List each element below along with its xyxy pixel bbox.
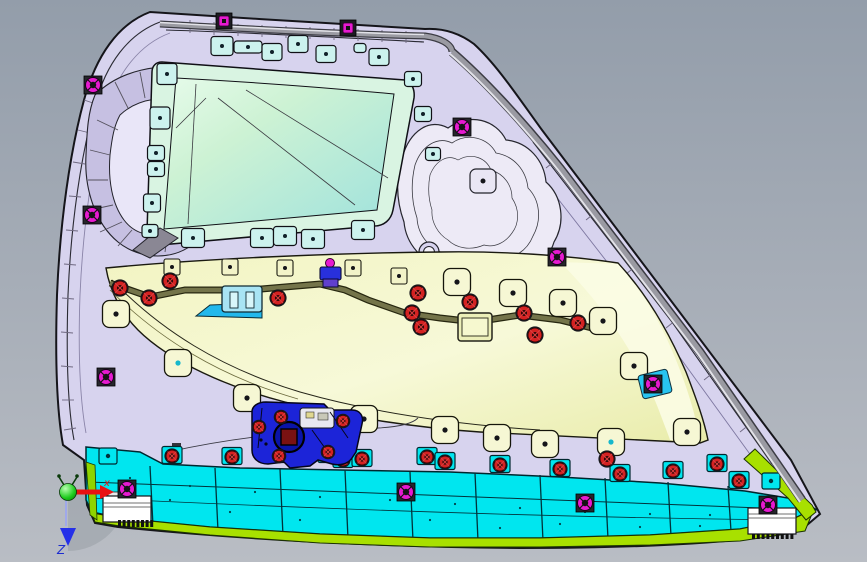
grommet-magenta[interactable] [576,494,594,512]
vent-slot [141,520,144,527]
screw-grommet-red[interactable] [526,326,543,343]
screw-grommet-red[interactable] [665,463,680,478]
clip-seat[interactable] [277,260,293,276]
rail-clip-tab[interactable] [99,448,117,464]
panel-clip[interactable] [415,107,432,122]
screw-grommet-red[interactable] [224,449,239,464]
screw-grommet-red[interactable] [111,279,128,296]
rail-screw-tab[interactable] [610,465,630,482]
vent-slot [762,534,765,539]
panel-clip[interactable] [157,64,177,85]
panel-clip[interactable] [262,44,282,61]
grommet-magenta[interactable] [548,248,566,266]
screw-grommet-red[interactable] [272,449,287,464]
retainer-bracket-slot [462,318,488,336]
rail-screw-tab[interactable] [417,448,437,465]
panel-clip[interactable] [405,72,422,87]
rail-clip-tab[interactable] [762,473,780,489]
latch-module[interactable] [252,402,363,468]
screw-grommet-red[interactable] [731,473,746,488]
panel-clip[interactable] [144,194,161,212]
clip-seat[interactable] [391,268,407,284]
panel-clip[interactable] [234,41,262,53]
vent-slot [150,520,153,527]
rail-screw-tab[interactable] [435,453,455,470]
screw-grommet-red[interactable] [354,451,369,466]
vent-slot [123,520,126,527]
clip-magenta-square[interactable] [216,13,232,29]
screw-grommet-red[interactable] [709,456,724,471]
screw-grommet-red[interactable] [140,289,157,306]
vent-slot [132,520,135,527]
rail-screw-tab[interactable] [162,447,182,464]
grommet-magenta[interactable] [83,206,101,224]
screw-boss-pad[interactable] [674,419,701,446]
panel-clip[interactable] [211,37,233,56]
screw-grommet-red[interactable] [612,466,627,481]
panel-clip[interactable] [148,146,165,161]
screw-boss-pad[interactable] [500,280,527,307]
screw-boss-pad[interactable] [103,301,130,328]
screw-grommet-red[interactable] [515,304,532,321]
vent-slot [136,520,139,527]
grommet-magenta[interactable] [759,496,777,514]
screw-grommet-red[interactable] [598,450,615,467]
screw-grommet-red[interactable] [409,284,426,301]
vent-slot [766,534,769,539]
screw-boss-pad[interactable] [484,425,511,452]
screw-grommet-red[interactable] [412,318,429,335]
vent-slot [790,534,793,539]
panel-clip[interactable] [148,162,165,177]
vent-slot [781,534,784,539]
screw-grommet-red[interactable] [269,289,286,306]
clip-magenta-square[interactable] [340,20,356,36]
cad-application-viewport: x Z [0,0,867,562]
clip-seat[interactable] [345,260,361,276]
vent-slot [127,520,130,527]
panel-clip[interactable] [182,229,205,248]
rail-screw-tab[interactable] [707,455,727,472]
screw-boss-pad[interactable] [165,350,192,377]
screw-grommet-red[interactable] [461,293,478,310]
screw-boss-pad[interactable] [444,269,471,296]
screw-boss-pad[interactable] [532,431,559,458]
origin-ball [60,484,77,501]
island-clip-tab[interactable] [470,169,496,193]
vent-slot [146,520,149,527]
grommet-magenta[interactable] [397,483,415,501]
screw-grommet-red[interactable] [321,445,336,460]
panel-clip[interactable] [354,44,366,53]
screw-boss-pad[interactable] [590,308,617,335]
rail-screw-tab[interactable] [729,472,749,489]
panel-clip[interactable] [251,229,274,248]
vent-slot [757,534,760,539]
x-axis-label: x [103,478,110,489]
screw-grommet-red[interactable] [419,449,434,464]
screw-grommet-red[interactable] [437,454,452,469]
panel-clip[interactable] [369,49,389,66]
grommet-magenta[interactable] [118,480,136,498]
panel-clip[interactable] [316,46,336,63]
screw-grommet-red[interactable] [492,457,507,472]
rail-screw-tab[interactable] [222,448,242,465]
grommet-magenta[interactable] [97,368,115,386]
grommet-magenta[interactable] [644,375,662,393]
screw-grommet-red[interactable] [161,272,178,289]
screw-grommet-red[interactable] [164,448,179,463]
clip-seat[interactable] [222,259,238,275]
panel-clip[interactable] [302,230,325,249]
panel-clip[interactable] [352,221,375,240]
cad-3d-viewport[interactable]: x Z [0,0,867,562]
screw-grommet-red[interactable] [336,414,351,429]
screw-grommet-red[interactable] [274,410,289,425]
rail-screw-tab[interactable] [663,462,683,479]
screw-grommet-red[interactable] [552,461,567,476]
z-axis-label: Z [56,543,66,557]
vent-slot [752,534,755,539]
panel-clip[interactable] [150,107,170,129]
panel-clip[interactable] [142,225,158,238]
vent-slot [786,534,789,539]
clip-seat[interactable] [164,259,180,275]
grommet-magenta[interactable] [84,76,102,94]
vent-slot [771,534,774,539]
panel-clip[interactable] [274,227,297,246]
screw-grommet-red[interactable] [252,420,267,435]
vent-slot [776,534,779,539]
rail-screw-tab[interactable] [490,456,510,473]
panel-clip[interactable] [288,36,308,53]
grommet-magenta[interactable] [453,118,471,136]
panel-clip[interactable] [426,148,441,161]
screw-boss-pad[interactable] [432,417,459,444]
vent-slot [118,520,121,527]
screw-boss-pad[interactable] [550,290,577,317]
y-axis-tip [57,474,61,478]
rail-screw-tab[interactable] [550,460,570,477]
screw-grommet-red[interactable] [569,314,586,331]
y-axis-tip [75,474,79,478]
